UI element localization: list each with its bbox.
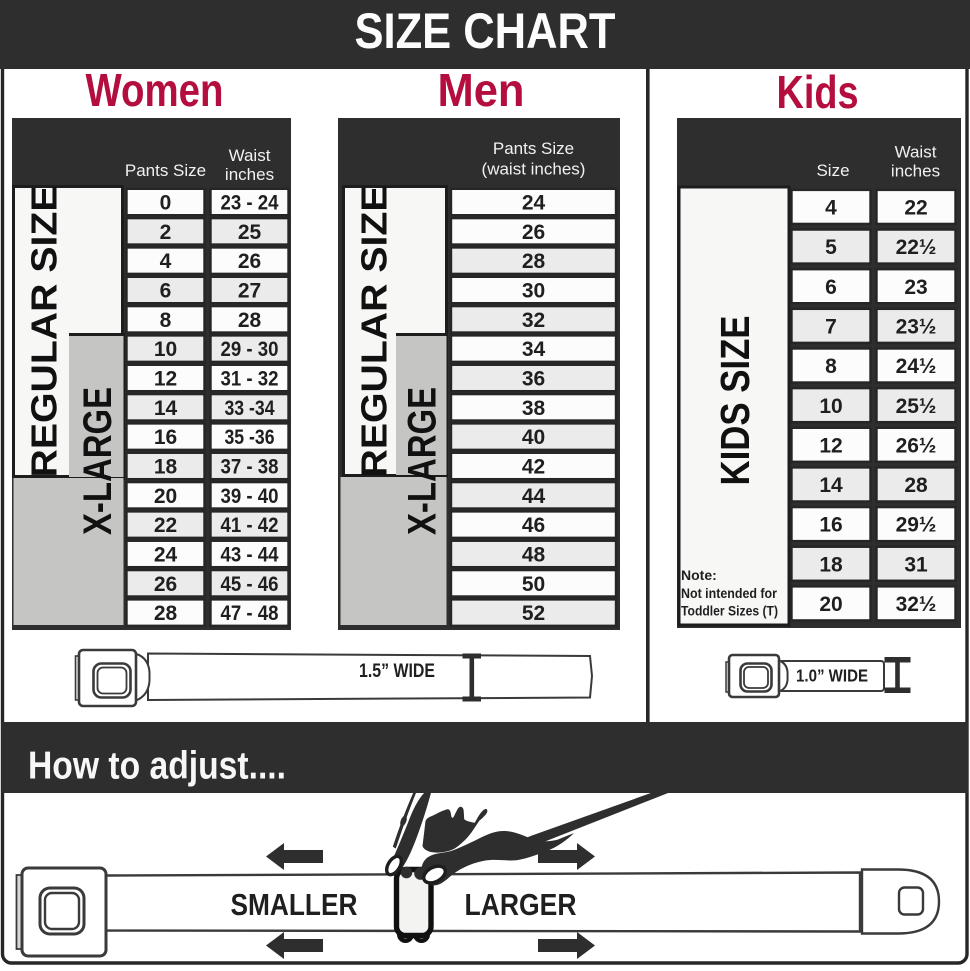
svg-text:Pants Size: Pants Size xyxy=(493,139,574,158)
svg-text:33 -34: 33 -34 xyxy=(225,397,275,420)
svg-text:Waist: Waist xyxy=(895,143,937,162)
svg-text:Not intended for: Not intended for xyxy=(681,585,777,601)
svg-text:31: 31 xyxy=(904,553,928,576)
svg-text:45 - 46: 45 - 46 xyxy=(221,573,279,596)
svg-text:10: 10 xyxy=(154,338,177,361)
svg-text:20: 20 xyxy=(819,593,842,616)
svg-text:14: 14 xyxy=(819,474,843,497)
svg-text:Waist: Waist xyxy=(229,146,271,165)
svg-text:26: 26 xyxy=(238,250,261,273)
svg-text:16: 16 xyxy=(154,426,177,449)
svg-text:Women: Women xyxy=(86,64,224,116)
svg-text:1.0” WIDE: 1.0” WIDE xyxy=(796,666,868,686)
svg-text:26: 26 xyxy=(522,221,545,244)
svg-text:SMALLER: SMALLER xyxy=(231,888,358,922)
svg-text:2: 2 xyxy=(160,221,172,244)
svg-text:22: 22 xyxy=(904,197,927,220)
svg-text:25: 25 xyxy=(238,221,262,244)
svg-text:32½: 32½ xyxy=(896,593,937,616)
svg-text:41 - 42: 41 - 42 xyxy=(221,514,279,537)
svg-text:26½: 26½ xyxy=(896,434,937,457)
svg-text:12: 12 xyxy=(154,367,177,390)
svg-text:47 - 48: 47 - 48 xyxy=(221,602,279,625)
svg-text:16: 16 xyxy=(819,514,842,537)
svg-text:12: 12 xyxy=(819,434,842,457)
svg-text:50: 50 xyxy=(522,573,545,596)
svg-text:38: 38 xyxy=(522,397,546,420)
svg-text:23½: 23½ xyxy=(896,315,937,338)
svg-text:25½: 25½ xyxy=(896,395,937,418)
svg-text:23: 23 xyxy=(904,276,927,299)
svg-text:Note:: Note: xyxy=(681,567,717,583)
svg-text:inches: inches xyxy=(891,162,940,181)
svg-text:1.5” WIDE: 1.5” WIDE xyxy=(359,661,435,682)
svg-text:REGULAR SIZE: REGULAR SIZE xyxy=(24,186,65,478)
svg-text:Kids: Kids xyxy=(777,66,859,118)
svg-text:REGULAR SIZE: REGULAR SIZE xyxy=(354,186,395,478)
svg-text:28: 28 xyxy=(522,250,546,273)
svg-text:28: 28 xyxy=(154,602,178,625)
svg-text:(waist inches): (waist inches) xyxy=(482,160,586,179)
svg-text:20: 20 xyxy=(154,485,177,508)
svg-text:14: 14 xyxy=(154,397,178,420)
svg-text:24: 24 xyxy=(154,543,178,566)
svg-text:18: 18 xyxy=(154,455,178,478)
svg-text:Pants Size: Pants Size xyxy=(125,161,206,180)
svg-text:Toddler Sizes (T): Toddler Sizes (T) xyxy=(681,602,778,618)
svg-text:6: 6 xyxy=(160,279,172,302)
svg-text:18: 18 xyxy=(819,553,843,576)
svg-text:44: 44 xyxy=(522,485,546,508)
svg-text:29 - 30: 29 - 30 xyxy=(221,338,279,361)
svg-text:30: 30 xyxy=(522,279,545,302)
svg-text:10: 10 xyxy=(819,395,842,418)
svg-text:KIDS SIZE: KIDS SIZE xyxy=(712,316,758,486)
svg-text:28: 28 xyxy=(238,309,262,332)
svg-text:SIZE CHART: SIZE CHART xyxy=(355,3,616,59)
svg-text:inches: inches xyxy=(225,165,274,184)
svg-text:5: 5 xyxy=(825,236,837,259)
svg-text:4: 4 xyxy=(160,250,172,273)
svg-text:4: 4 xyxy=(825,197,837,220)
svg-text:28: 28 xyxy=(904,474,928,497)
svg-text:32: 32 xyxy=(522,309,545,332)
svg-text:52: 52 xyxy=(522,602,545,625)
svg-text:36: 36 xyxy=(522,367,545,390)
svg-text:How to adjust....: How to adjust.... xyxy=(28,744,286,787)
svg-text:42: 42 xyxy=(522,455,545,478)
svg-text:48: 48 xyxy=(522,543,546,566)
svg-text:39 - 40: 39 - 40 xyxy=(221,485,279,508)
svg-text:6: 6 xyxy=(825,276,837,299)
svg-text:Size: Size xyxy=(816,161,849,180)
svg-text:22½: 22½ xyxy=(896,236,937,259)
svg-text:35 -36: 35 -36 xyxy=(225,426,275,449)
svg-text:LARGER: LARGER xyxy=(465,888,577,922)
svg-text:X-LARGE: X-LARGE xyxy=(401,387,445,535)
svg-text:Men: Men xyxy=(438,64,525,116)
svg-text:22: 22 xyxy=(154,514,177,537)
svg-text:31 - 32: 31 - 32 xyxy=(221,367,279,390)
svg-text:43 - 44: 43 - 44 xyxy=(221,543,279,566)
svg-text:23 - 24: 23 - 24 xyxy=(221,192,279,215)
svg-text:34: 34 xyxy=(522,338,546,361)
svg-text:8: 8 xyxy=(825,355,837,378)
svg-text:46: 46 xyxy=(522,514,545,537)
svg-text:24: 24 xyxy=(522,192,546,215)
svg-text:29½: 29½ xyxy=(896,514,937,537)
svg-text:27: 27 xyxy=(238,279,261,302)
svg-text:8: 8 xyxy=(160,309,172,332)
svg-text:7: 7 xyxy=(825,315,837,338)
svg-text:24½: 24½ xyxy=(896,355,937,378)
svg-text:0: 0 xyxy=(160,192,172,215)
svg-text:X-LARGE: X-LARGE xyxy=(76,387,120,535)
svg-text:37 - 38: 37 - 38 xyxy=(221,455,279,478)
svg-text:26: 26 xyxy=(154,573,177,596)
svg-text:40: 40 xyxy=(522,426,545,449)
